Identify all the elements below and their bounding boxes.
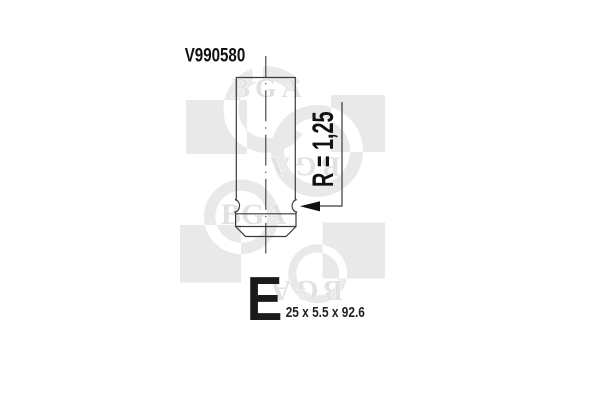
svg-text:E: E bbox=[247, 264, 283, 334]
svg-text:R = 1,25: R = 1,25 bbox=[307, 111, 340, 187]
svg-text:V990580: V990580 bbox=[185, 43, 246, 65]
svg-text:25 x 5.5 x 92.6: 25 x 5.5 x 92.6 bbox=[286, 303, 366, 320]
